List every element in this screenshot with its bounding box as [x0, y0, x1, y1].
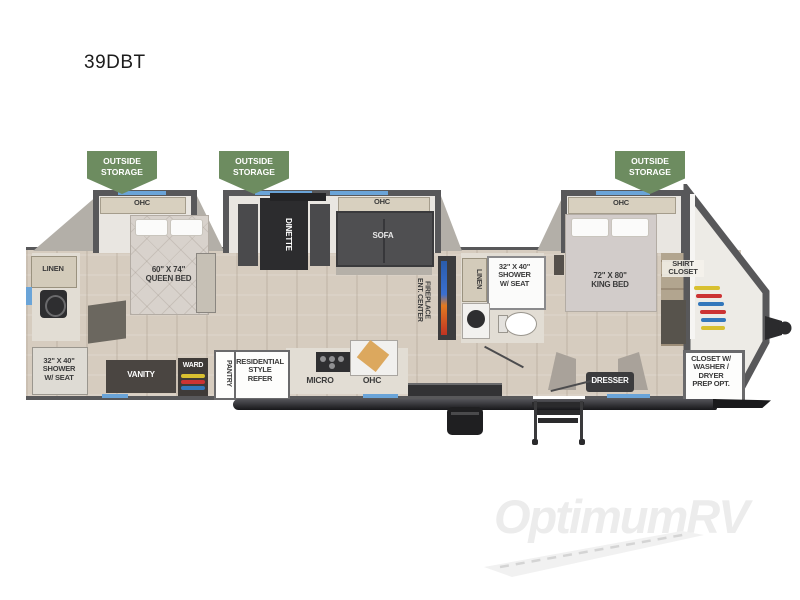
step	[538, 418, 578, 423]
chassis-frame-taper	[713, 399, 771, 408]
clothes-hanger	[181, 380, 205, 384]
step-rail	[534, 401, 537, 439]
clothes-hanger	[181, 374, 205, 378]
wall-wedge	[441, 196, 462, 251]
shirt-closet-label: SHIRT CLOSET	[662, 260, 704, 277]
queen-bed-label: 60" X 74" QUEEN BED	[130, 266, 207, 284]
sofa-ohc-label: OHC	[352, 198, 412, 206]
step-detail	[451, 412, 479, 415]
step	[532, 402, 584, 407]
clothes-hanger	[696, 294, 722, 298]
closet-cabinet	[661, 300, 686, 344]
king-pillow	[571, 218, 609, 237]
dinette-label: DINETTE	[276, 203, 292, 265]
king-pillow	[611, 218, 649, 237]
burner	[329, 356, 335, 362]
fireplace-insert	[441, 261, 447, 335]
tv-counter	[408, 383, 502, 396]
nightstand	[554, 255, 564, 275]
sink-bowl	[467, 310, 485, 328]
toilet	[505, 312, 537, 336]
dinette-bench	[310, 204, 330, 266]
burner	[329, 363, 335, 369]
vanity-label: VANITY	[106, 371, 176, 380]
mid-shower-label: 32" X 40" SHOWER W/ SEAT	[487, 263, 542, 288]
step-foot	[579, 439, 585, 445]
clothes-hanger	[181, 386, 205, 390]
clothes-hanger	[694, 286, 720, 290]
mid-linen-label: LINEN	[465, 260, 482, 298]
window	[607, 394, 650, 398]
sofa-label: SOFA	[336, 232, 430, 241]
outside-storage-banner: OUTSIDE STORAGE	[615, 151, 685, 194]
rear-toilet-seat	[45, 295, 66, 317]
dinette-table-edge	[270, 193, 326, 201]
burner	[320, 356, 326, 362]
queen-pillow	[135, 219, 168, 236]
dinette-bench	[238, 204, 258, 266]
microwave-label: MICRO	[296, 376, 344, 386]
window	[363, 394, 398, 398]
sofa-cushion-divider	[383, 219, 385, 263]
washer-dryer-closet-label: CLOSET W/ WASHER / DRYER PREP OPT.	[683, 355, 739, 389]
rear-toilet	[40, 290, 67, 318]
clothes-hanger	[701, 318, 726, 322]
pantry-label: PANTRY	[216, 352, 232, 394]
outside-storage-banner: OUTSIDE STORAGE	[219, 151, 289, 194]
window	[596, 191, 650, 195]
rear-linen-label: LINEN	[31, 265, 75, 273]
clothes-hanger	[700, 310, 726, 314]
window	[26, 287, 32, 305]
watermark-road-graphic	[482, 523, 722, 583]
rear-shower-label: 32" X 40" SHOWER W/ SEAT	[30, 357, 88, 382]
refrigerator-label: RESIDENTIAL STYLE REFER	[234, 358, 286, 383]
entertainment-center-label: ENT. CENTER FIREPLACE	[415, 258, 437, 342]
cutting-board	[357, 340, 389, 372]
burner	[338, 356, 344, 362]
kitchen-ohc-label: OHC	[352, 376, 392, 386]
window	[102, 394, 128, 398]
queen-ohc-label: OHC	[100, 199, 184, 207]
outside-storage-banner: OUTSIDE STORAGE	[87, 151, 157, 194]
bath-sink-counter	[462, 303, 490, 339]
queen-wardrobe-cabinet	[88, 300, 126, 343]
clothes-hanger	[701, 326, 725, 330]
step-foot	[532, 439, 538, 445]
page-title: 39DBT	[84, 52, 146, 74]
entertainment-center	[438, 256, 456, 340]
clothes-hanger	[698, 302, 724, 306]
wall-wedge	[537, 196, 563, 251]
queen-pillow	[170, 219, 203, 236]
floorplan-page: 39DBT OptimumRV OUTSIDE STORAGE OUTSIDE	[0, 0, 800, 600]
king-ohc-label: OHC	[568, 199, 674, 207]
stove-cooktop	[316, 352, 350, 372]
step	[535, 410, 581, 415]
entry-steps	[530, 399, 588, 447]
dresser-label: DRESSER	[586, 377, 634, 386]
window	[330, 191, 388, 195]
storage-step-box	[447, 407, 483, 435]
step-rail	[580, 401, 583, 439]
king-bed-label: 72" X 80" KING BED	[565, 272, 655, 290]
kitchen-island	[350, 340, 398, 376]
wardrobe-label: WARD	[178, 362, 208, 370]
wall-wedge	[33, 196, 93, 251]
